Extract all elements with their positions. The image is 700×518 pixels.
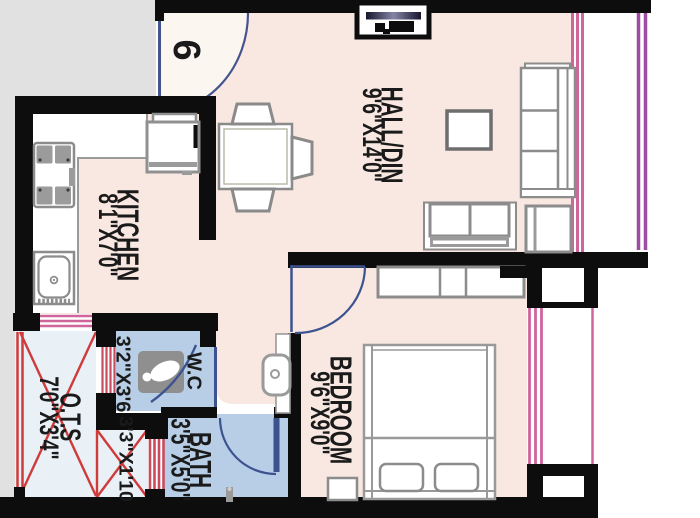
svg-text:6: 6	[165, 39, 207, 60]
svg-text:7'0"X3'4": 7'0"X3'4"	[34, 376, 64, 459]
svg-text:9'6"X14'0": 9'6"X14'0"	[357, 88, 387, 182]
svg-text:3'5"X5'0": 3'5"X5'0"	[166, 418, 196, 501]
svg-text:3'2"X3'6: 3'2"X3'6	[112, 336, 134, 413]
svg-text:3'3"X1'10: 3'3"X1'10	[115, 416, 137, 502]
svg-text:W.C: W.C	[183, 352, 205, 390]
svg-text:9'6"X9'0": 9'6"X9'0"	[305, 371, 335, 454]
svg-text:8'1"X7'0": 8'1"X7'0"	[93, 193, 123, 276]
